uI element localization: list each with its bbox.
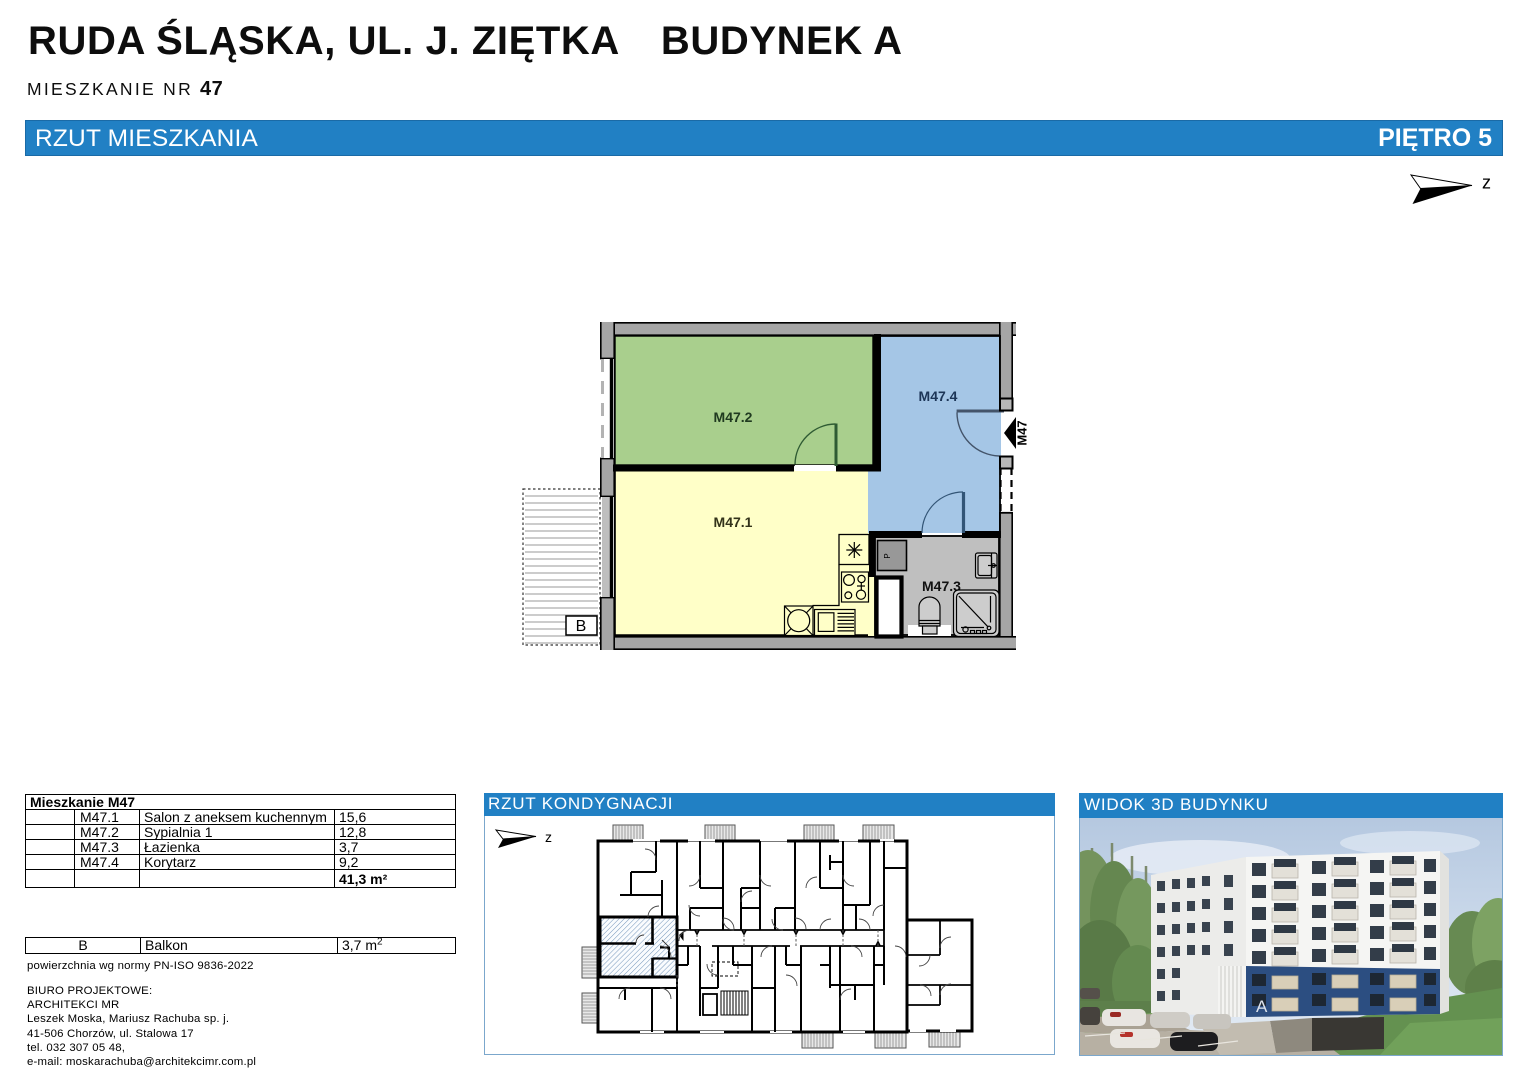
svg-text:B: B [576, 618, 587, 635]
svg-text:A: A [1256, 997, 1268, 1016]
svg-text:M47.2: M47.2 [714, 409, 753, 425]
svg-text:M47: M47 [1015, 420, 1030, 445]
svg-text:z: z [545, 829, 552, 845]
svg-text:P: P [883, 553, 892, 558]
svg-text:M47.1: M47.1 [714, 514, 753, 530]
svg-text:z: z [1482, 173, 1491, 193]
svg-text:M47.4: M47.4 [919, 388, 958, 404]
